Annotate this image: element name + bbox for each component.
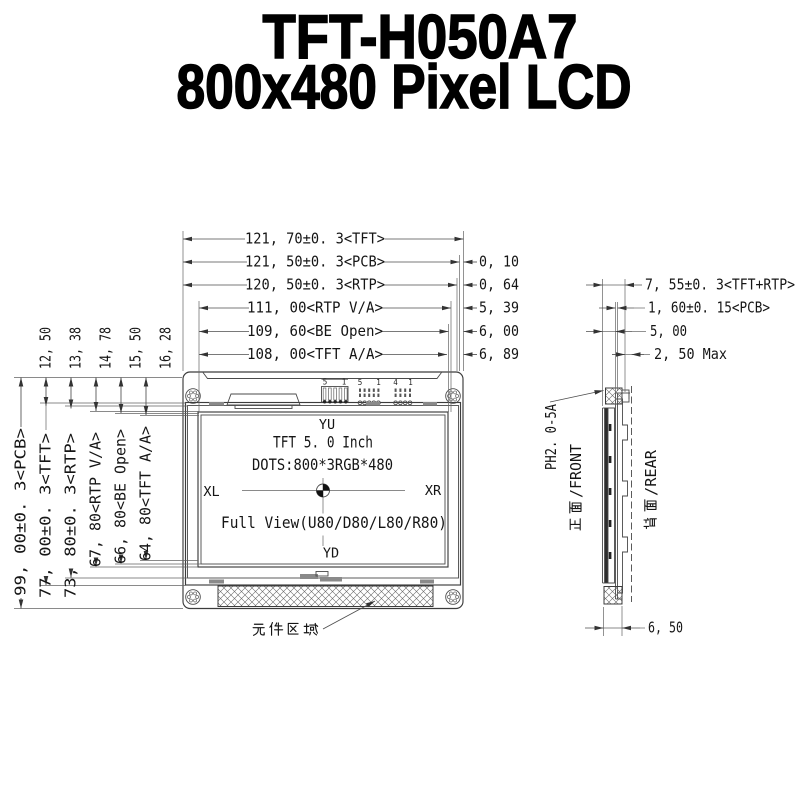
dim-top-gap-be: 15, 50: [127, 327, 145, 369]
dim-be-open-offset: 6, 00: [479, 322, 519, 340]
dim-tft-aa-height: 64, 80<TFT A/A>: [137, 426, 155, 561]
front-side-label: /FRONT: [567, 444, 585, 530]
front-side-label-latin: /FRONT: [567, 444, 585, 498]
cjk-yuan: [253, 624, 264, 635]
dim-rtp-offset: 0, 64: [479, 276, 519, 294]
dim-pcb-height: 99, 00±0. 3<PCB>: [12, 428, 30, 596]
test-pad-group-2: 4 1: [393, 378, 413, 405]
pad-group1-last-label: 1: [376, 378, 381, 387]
dim-tft-height: 77, 00±0. 3<TFT>: [37, 433, 55, 598]
rear-side-label: /REAR: [642, 449, 660, 529]
rear-components-block: [604, 587, 622, 605]
center-crosshair: [242, 478, 405, 546]
dim-be-open-height: 66, 80<BE Open>: [112, 429, 130, 564]
dim-top-gap-tft: 12, 50: [37, 327, 55, 369]
cjk-mian: [570, 502, 581, 513]
spec-sheet-page: TFT-H050A7 800x480 Pixel LCD 5 1: [0, 0, 800, 800]
mount-hole-bottom-left: [186, 590, 201, 605]
centroid-target-icon: [317, 484, 330, 497]
pin-header: 5 1: [322, 378, 349, 404]
title-resolution: 800x480 Pixel LCD: [177, 53, 632, 122]
dim-rtp-height: 73, 80±0. 3<RTP>: [62, 433, 80, 598]
dim-bottom-depth: 6, 50: [648, 619, 683, 637]
polarizer-edge: [605, 408, 608, 583]
rear-bracket: [618, 399, 628, 593]
cjk-jian: [270, 623, 283, 636]
cjk-bei: [644, 518, 656, 528]
test-pad-group-1: 5 1: [358, 378, 381, 405]
fpc-contacts: [609, 424, 612, 559]
dim-tft-aa-width: 108, 00<TFT A/A>: [247, 345, 383, 363]
fpc-connector: [227, 394, 300, 409]
dim-top-gap-aa: 16, 28: [157, 327, 175, 369]
marker-yd: YD: [323, 546, 339, 562]
dim-rtp-width: 120, 50±0. 3<RTP>: [245, 276, 385, 294]
dim-module-thickness: 5, 00: [650, 322, 687, 340]
cjk-qu: [288, 623, 298, 634]
dim-pcb-offset: 0, 10: [479, 253, 519, 271]
dim-pcb-thickness: 1, 60±0. 15<PCB>: [648, 299, 770, 317]
dim-be-open-width: 109, 60<BE Open>: [247, 322, 383, 340]
dim-rear-max: 2, 50 Max: [654, 345, 727, 363]
connector-label: PH2. 0-5A: [542, 404, 560, 470]
dim-tft-aa-offset: 6, 89: [479, 345, 519, 363]
component-area-label: [253, 623, 318, 636]
dim-rtp-va-height: 67, 80<RTP V/A>: [87, 432, 105, 567]
pad-group1-first-label: 5: [358, 378, 363, 387]
cjk-mian2: [645, 500, 656, 511]
dim-tft-width: 121, 70±0. 3<TFT>: [245, 230, 385, 248]
connector-leader: [550, 391, 604, 403]
screen-size-text: TFT 5. 0 Inch: [273, 433, 373, 452]
marker-xl: XL: [203, 484, 219, 500]
dim-pcb-width: 121, 50±0. 3<PCB>: [245, 253, 385, 271]
ph-connector-block: [606, 388, 623, 404]
component-area-hatch: [218, 586, 433, 607]
marker-yu: YU: [319, 417, 335, 433]
front-left-dimensions: 99, 00±0. 3<PCB> 12, 50 77, 00±0. 3<TFT>…: [12, 327, 202, 609]
pin-header-last-label: 1: [342, 378, 347, 387]
mount-hole-bottom-right: [446, 590, 461, 605]
pin-header-first-label: 5: [323, 378, 328, 387]
dim-top-gap-rtp-va: 14, 78: [97, 327, 115, 369]
cjk-yu: [304, 623, 317, 634]
dim-rtp-va-offset: 5, 39: [479, 299, 519, 317]
screen-dots-text: DOTS:800*3RGB*480: [252, 455, 393, 474]
front-top-dimensions: 121, 70±0. 3<TFT> 121, 50±0. 3<PCB> 0, 1…: [183, 230, 519, 413]
screen-view-text: Full View(U80/D80/L80/R80): [221, 513, 447, 532]
pad-group2-first-label: 4: [393, 378, 398, 387]
side-view: PH2. 0-5A /FRONT /REAR: [542, 386, 660, 604]
side-dimensions: 7, 55±0. 3<TFT+RTP> 1, 60±0. 15<PCB> 5, …: [585, 276, 795, 637]
dim-rtp-va-width: 111, 00<RTP V/A>: [247, 299, 383, 317]
marker-xr: XR: [425, 483, 442, 499]
technical-drawing: TFT-H050A7 800x480 Pixel LCD 5 1: [0, 0, 800, 800]
mount-hole-top-left: [186, 389, 201, 404]
front-view: 5 1 5 1 4 1: [183, 372, 463, 635]
title-block: TFT-H050A7 800x480 Pixel LCD: [177, 3, 632, 122]
rear-side-label-latin: /REAR: [642, 449, 660, 496]
mount-hole-top-right: [446, 389, 461, 404]
pad-group2-last-label: 1: [408, 378, 413, 387]
cjk-zheng: [570, 519, 580, 530]
dim-total-thickness: 7, 55±0. 3<TFT+RTP>: [645, 276, 795, 294]
dim-top-gap-rtp: 13, 38: [67, 327, 85, 369]
